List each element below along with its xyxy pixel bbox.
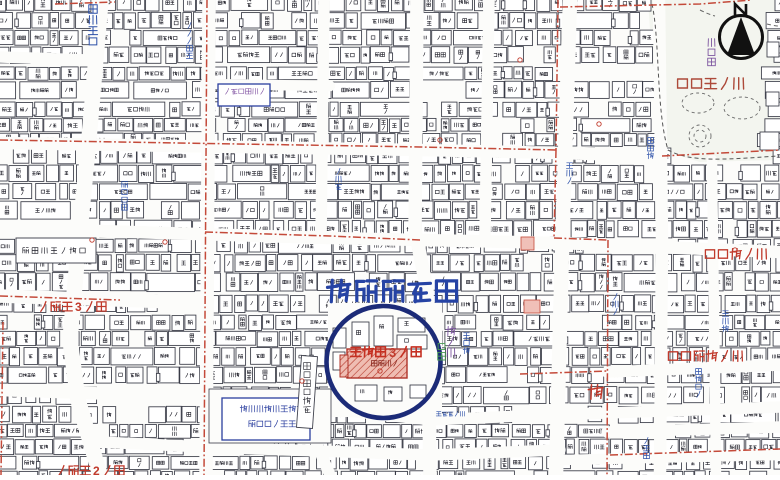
svg-text:2: 2 — [93, 464, 100, 475]
svg-text:3: 3 — [389, 345, 396, 360]
svg-text:3: 3 — [75, 300, 82, 314]
